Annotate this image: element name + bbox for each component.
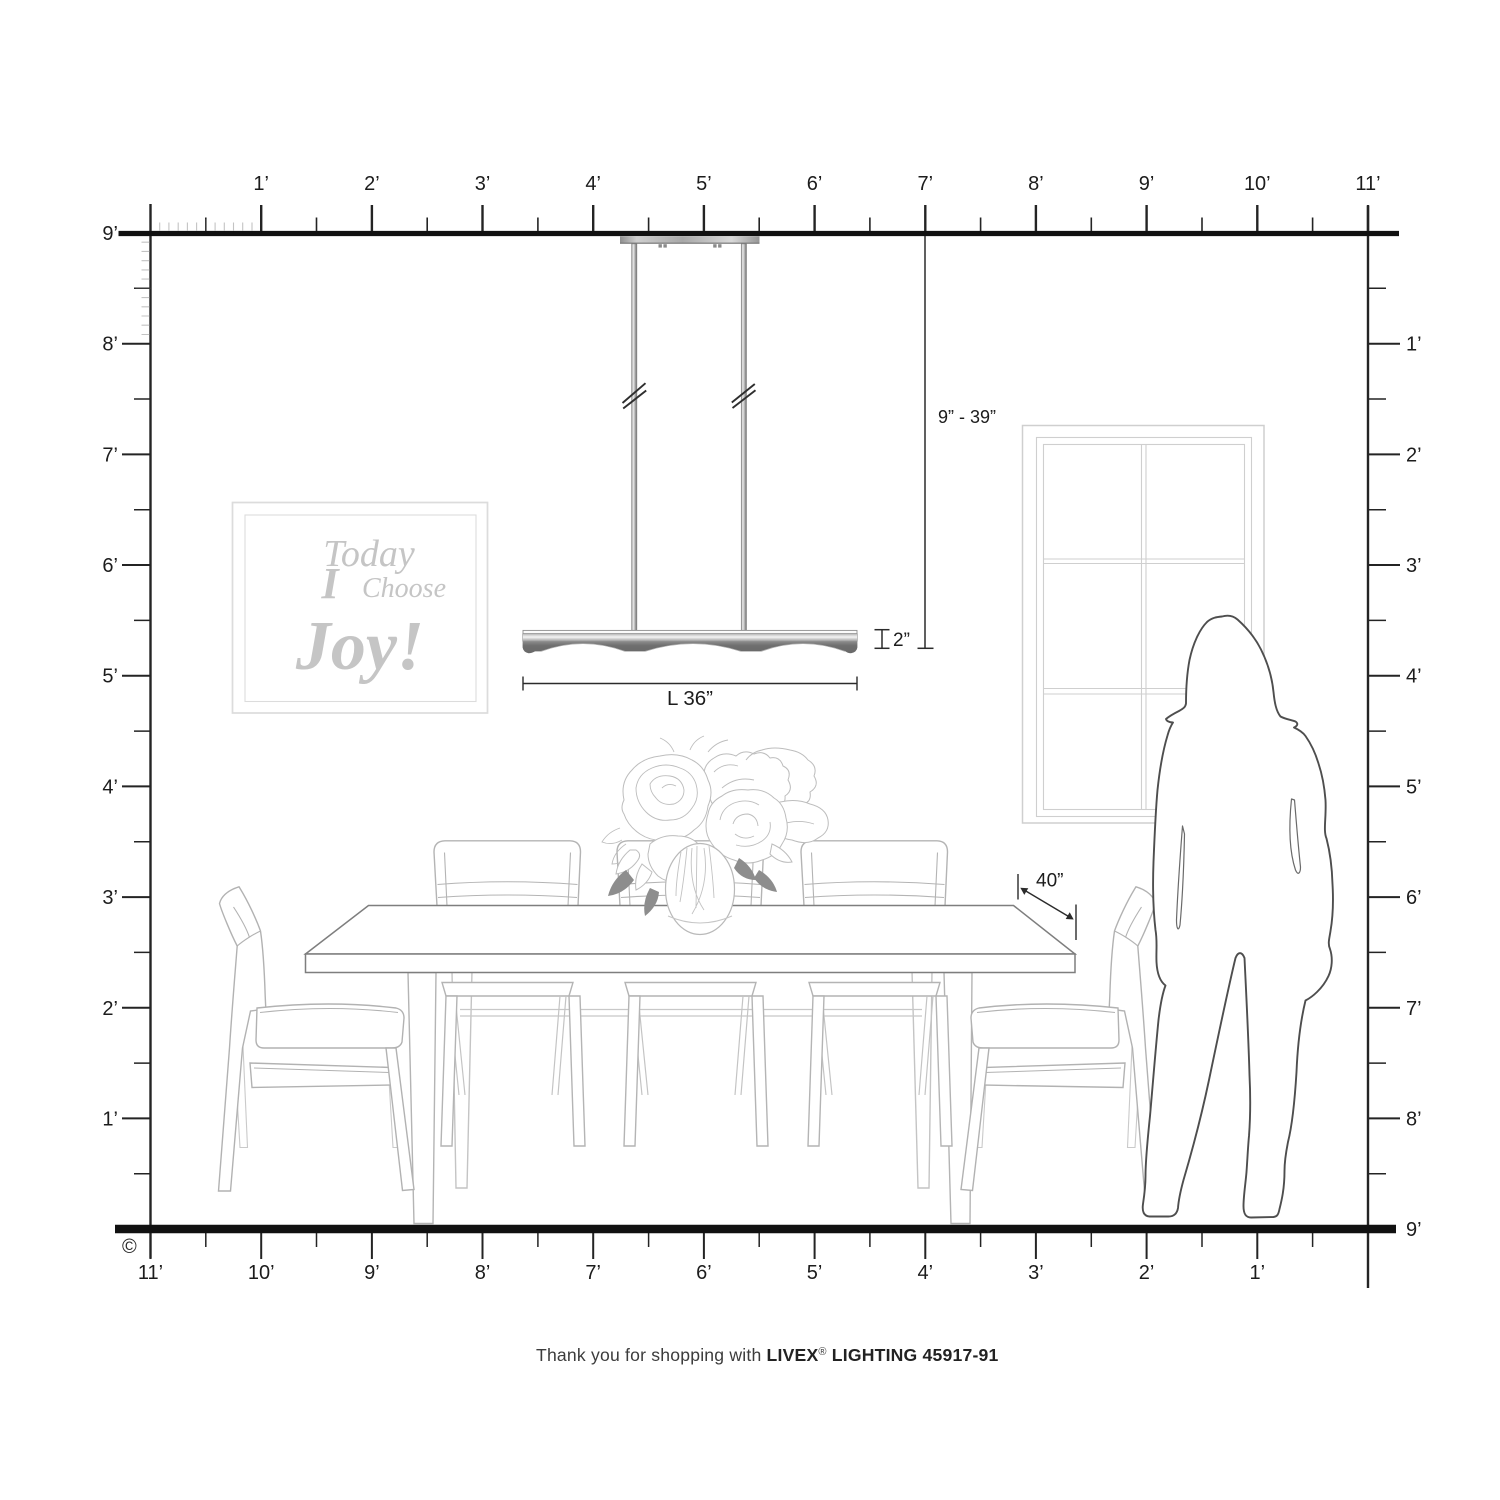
svg-text:8’: 8’ xyxy=(1028,173,1044,195)
svg-text:Thank you for shopping with LI: Thank you for shopping with LIVEX® LIGHT… xyxy=(536,1345,998,1365)
svg-text:4’: 4’ xyxy=(585,173,601,195)
svg-text:3’: 3’ xyxy=(1406,555,1422,577)
svg-text:9’: 9’ xyxy=(1139,173,1155,195)
svg-text:9’: 9’ xyxy=(1406,1219,1422,1241)
svg-text:10’: 10’ xyxy=(1244,173,1271,195)
svg-text:I: I xyxy=(320,559,340,608)
svg-text:8’: 8’ xyxy=(1406,1108,1422,1130)
svg-text:L 36”: L 36” xyxy=(667,687,713,710)
svg-text:5’: 5’ xyxy=(807,1262,823,1284)
svg-text:6’: 6’ xyxy=(102,555,118,577)
svg-text:Choose: Choose xyxy=(362,573,446,604)
svg-text:©: © xyxy=(122,1236,137,1258)
svg-text:10’: 10’ xyxy=(248,1262,275,1284)
svg-text:11’: 11’ xyxy=(1355,173,1380,195)
svg-text:9’: 9’ xyxy=(102,223,118,245)
svg-text:4’: 4’ xyxy=(1406,666,1422,688)
svg-text:Joy!: Joy! xyxy=(295,608,424,685)
svg-text:1’: 1’ xyxy=(1250,1262,1266,1284)
svg-text:6’: 6’ xyxy=(807,173,823,195)
svg-text:40”: 40” xyxy=(1036,871,1063,892)
svg-text:2’: 2’ xyxy=(102,998,118,1020)
svg-text:3’: 3’ xyxy=(475,173,491,195)
svg-text:8’: 8’ xyxy=(475,1262,491,1284)
svg-text:4’: 4’ xyxy=(102,776,118,798)
svg-text:5’: 5’ xyxy=(1406,776,1422,798)
svg-text:7’: 7’ xyxy=(585,1262,601,1284)
svg-text:2’: 2’ xyxy=(1139,1262,1155,1284)
svg-text:6’: 6’ xyxy=(696,1262,712,1284)
svg-text:2”: 2” xyxy=(893,630,910,651)
svg-text:2’: 2’ xyxy=(1406,444,1422,466)
svg-text:9’: 9’ xyxy=(364,1262,380,1284)
svg-text:4’: 4’ xyxy=(918,1262,934,1284)
svg-text:7’: 7’ xyxy=(918,173,934,195)
svg-text:3’: 3’ xyxy=(1028,1262,1044,1284)
svg-text:8’: 8’ xyxy=(102,334,118,356)
svg-text:3’: 3’ xyxy=(102,887,118,909)
svg-text:2’: 2’ xyxy=(364,173,380,195)
svg-text:1’: 1’ xyxy=(102,1108,118,1130)
svg-text:6’: 6’ xyxy=(1406,887,1422,909)
svg-text:5’: 5’ xyxy=(696,173,712,195)
svg-text:7’: 7’ xyxy=(1406,998,1422,1020)
svg-text:1’: 1’ xyxy=(253,173,269,195)
svg-text:5’: 5’ xyxy=(102,666,118,688)
svg-text:7’: 7’ xyxy=(102,444,118,466)
svg-text:9” - 39”: 9” - 39” xyxy=(938,407,996,427)
svg-text:1’: 1’ xyxy=(1406,334,1422,356)
svg-text:11’: 11’ xyxy=(138,1262,163,1284)
